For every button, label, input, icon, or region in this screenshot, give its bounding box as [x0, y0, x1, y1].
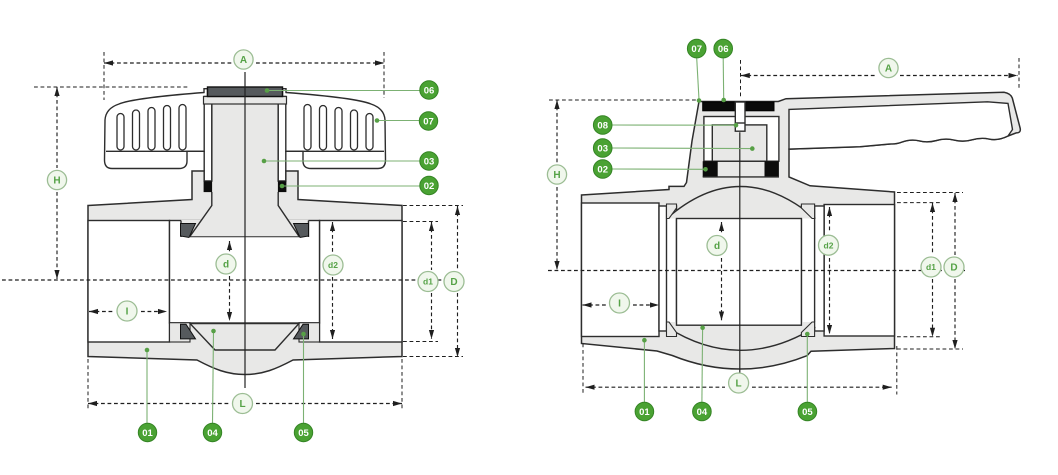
svg-text:H: H [53, 176, 60, 187]
svg-text:07: 07 [423, 117, 434, 128]
svg-text:d2: d2 [824, 240, 834, 250]
svg-text:04: 04 [207, 428, 218, 439]
svg-text:A: A [240, 55, 247, 66]
svg-text:05: 05 [802, 407, 813, 418]
svg-text:01: 01 [639, 407, 650, 418]
svg-text:L: L [239, 399, 245, 410]
svg-text:05: 05 [298, 428, 309, 439]
svg-text:H: H [553, 170, 560, 181]
svg-text:08: 08 [597, 121, 608, 132]
svg-text:06: 06 [424, 86, 435, 97]
svg-text:06: 06 [718, 44, 729, 55]
svg-text:I: I [618, 299, 621, 310]
svg-text:L: L [736, 379, 742, 390]
svg-text:03: 03 [597, 144, 608, 155]
svg-text:D: D [950, 263, 957, 274]
svg-text:04: 04 [697, 407, 708, 418]
svg-text:03: 03 [424, 157, 435, 168]
svg-text:d1: d1 [926, 262, 936, 272]
svg-text:A: A [885, 64, 892, 75]
svg-text:d: d [223, 260, 229, 271]
svg-text:I: I [126, 307, 129, 318]
svg-text:d1: d1 [423, 277, 433, 287]
svg-text:02: 02 [424, 181, 435, 192]
svg-text:D: D [450, 277, 457, 288]
svg-text:d: d [714, 241, 720, 252]
svg-text:d2: d2 [328, 260, 338, 270]
svg-text:07: 07 [691, 44, 702, 55]
svg-text:02: 02 [597, 165, 608, 176]
svg-text:01: 01 [142, 428, 153, 439]
